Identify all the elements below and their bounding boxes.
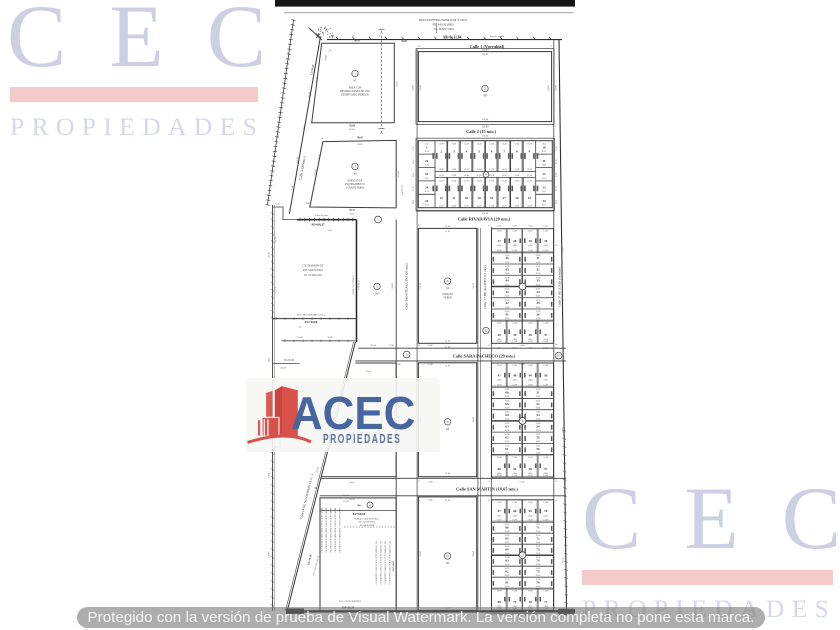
svg-text:Calle 3 (20 mts.): Calle 3 (20 mts.) [298,155,306,180]
svg-text:6: 6 [491,150,493,154]
svg-text:70: 70 [544,509,548,513]
svg-text:13,28: 13,28 [489,175,494,177]
svg-text:26,00: 26,00 [505,430,510,432]
svg-text:51,00: 51,00 [445,225,451,228]
svg-text:26,00: 26,00 [505,568,510,570]
svg-text:4: 4 [466,150,468,154]
svg-text:88: 88 [484,94,488,98]
svg-text:95,08: 95,08 [349,125,356,128]
svg-text:13,00: 13,00 [543,385,548,387]
svg-text:26,00: 26,00 [536,564,541,566]
svg-text:64,50: 64,50 [349,499,355,501]
svg-text:20: 20 [465,196,469,200]
svg-text:26,00: 26,00 [505,553,510,555]
svg-text:26,00: 26,00 [505,575,510,577]
svg-text:41,10: 41,10 [318,153,322,160]
svg-text:13,00: 13,00 [543,520,548,522]
svg-text:(360): (360) [528,244,532,247]
svg-text:13,00: 13,00 [512,341,517,343]
svg-text:13,00: 13,00 [528,520,533,522]
svg-text:13,00: 13,00 [528,591,533,593]
svg-text:AB=0+11,84: AB=0+11,84 [443,36,462,40]
svg-text:13,00: 13,00 [528,250,533,252]
svg-text:COMUNITARIO: COMUNITARIO [346,187,364,190]
svg-text:IV: IV [557,355,560,358]
svg-text:II: II [406,352,408,356]
svg-text:(360): (360) [544,472,548,475]
svg-text:(360): (360) [513,472,517,475]
svg-text:Calle MONTEAGUDO (20 mts.): Calle MONTEAGUDO (20 mts.) [405,262,409,310]
svg-text:100,00: 100,00 [420,551,422,557]
svg-text:13,00: 13,00 [543,591,548,593]
svg-text:13,28: 13,28 [514,175,519,177]
svg-text:18: 18 [490,196,494,200]
svg-text:13,28: 13,28 [464,169,469,171]
svg-text:12: 12 [379,36,381,38]
svg-text:47: 47 [498,373,502,377]
svg-text:94: 94 [358,504,361,508]
svg-text:110,00: 110,00 [482,135,489,138]
svg-text:13,00: 13,00 [497,502,502,504]
svg-text:42: 42 [505,301,509,305]
svg-text:13,00: 13,00 [543,250,548,252]
svg-text:93: 93 [446,427,450,431]
svg-text:26,00: 26,00 [505,266,510,268]
svg-text:43,30: 43,30 [268,253,270,258]
svg-text:5: 5 [478,150,480,154]
svg-text:DEC+68,05: DEC+68,05 [393,560,395,572]
svg-text:13,00: 13,00 [543,475,548,477]
svg-text:13,00: 13,00 [543,231,548,233]
svg-text:17,88: 17,88 [388,345,394,347]
svg-text:13,28: 13,28 [477,180,482,182]
svg-text:13,00: 13,00 [543,341,548,343]
svg-text:(360): (360) [513,514,517,517]
svg-text:SD+66,37: SD+66,37 [311,223,324,227]
svg-text:80: 80 [498,600,502,604]
svg-text:10: 10 [542,145,546,149]
svg-text:43,28: 43,28 [303,124,307,131]
svg-text:100,00: 100,00 [473,551,475,557]
svg-text:(360): (360) [513,338,517,341]
svg-text:38: 38 [529,333,533,337]
svg-text:13,28: 13,28 [527,175,532,177]
svg-text:s 29,70: s 29,70 [275,287,277,293]
svg-text:49: 49 [529,373,533,377]
svg-text:16,52: 16,52 [425,191,429,193]
svg-text:26,00: 26,00 [505,423,510,425]
svg-text:69: 69 [529,509,533,513]
svg-text:13,00: 13,00 [497,591,502,593]
svg-text:60: 60 [498,467,502,471]
svg-text:37: 37 [544,333,548,337]
svg-text:26,00: 26,00 [536,524,541,526]
svg-text:13,28: 13,28 [527,144,532,146]
svg-text:100,00: 100,00 [563,427,565,433]
svg-text:13,00: 13,00 [543,323,548,325]
svg-text:13,28: 13,28 [452,144,457,146]
svg-text:13,00: 13,00 [497,457,502,459]
svg-text:15: 15 [528,196,532,200]
svg-text:13,28: 13,28 [413,160,415,164]
svg-text:98,83: 98,83 [357,143,363,146]
svg-text:77: 77 [544,600,548,604]
svg-text:13: 13 [542,186,546,190]
svg-text:95,08: 95,08 [349,128,355,131]
svg-text:13,28: 13,28 [439,169,444,171]
svg-text:13,28: 13,28 [556,146,558,150]
svg-text:13: 13 [555,481,557,483]
svg-text:13,28: 13,28 [413,200,415,204]
svg-text:26,00: 26,00 [536,423,541,425]
svg-text:51,00: 51,00 [445,231,451,233]
svg-text:26,00: 26,00 [536,273,541,275]
svg-text:III: III [485,329,488,332]
svg-text:26,00: 26,00 [505,531,510,533]
svg-text:2: 2 [484,87,486,91]
svg-text:13,28: 13,28 [413,173,415,177]
svg-text:26,00: 26,00 [536,318,541,320]
svg-text:13,28: 13,28 [489,205,494,207]
svg-text:26,00: 26,00 [536,277,541,279]
svg-text:100,00: 100,00 [563,297,565,303]
svg-text:38,44: 38,44 [370,345,376,347]
svg-text:25: 25 [425,172,429,176]
svg-text:13,00: 13,00 [528,323,533,325]
svg-text:COHERENTE CARLOS R Y OT PD 345: COHERENTE CARLOS R Y OT PD 34509 PL 128 [389,541,392,585]
svg-text:7,50: 7,50 [275,204,280,206]
svg-text:26,00: 26,00 [505,296,510,298]
svg-text:57: 57 [544,467,548,471]
svg-text:26,00: 26,00 [505,400,510,402]
svg-text:PL 36.82171904: PL 36.82171904 [434,27,454,31]
svg-text:13: 13 [418,345,420,347]
svg-text:13,28: 13,28 [502,169,507,171]
svg-text:13,28: 13,28 [439,144,444,146]
svg-text:13,28: 13,28 [514,169,519,171]
svg-text:COHERENTE CARLOS R Y OT PD 345: COHERENTE CARLOS R Y OT PD 34509 PL 128 [380,541,383,585]
svg-text:13,28: 13,28 [477,175,482,177]
svg-text:A 45 20' 55": A 45 20' 55" [401,184,404,195]
svg-text:26,00: 26,00 [505,289,510,291]
svg-text:13,28: 13,28 [477,144,482,146]
svg-text:78,22: 78,22 [349,212,355,215]
svg-text:51,00: 51,00 [427,364,433,366]
svg-text:110,00: 110,00 [481,48,489,51]
svg-text:100,00: 100,00 [563,557,565,563]
svg-text:16: 16 [515,196,519,200]
svg-text:22: 22 [440,196,444,200]
svg-text:26,00: 26,00 [536,557,541,559]
svg-text:12: 12 [542,172,546,176]
svg-text:26,00: 26,00 [505,452,510,454]
svg-text:13,28: 13,28 [502,180,507,182]
svg-text:13,00: 13,00 [497,250,502,252]
svg-text:85,50: 85,50 [268,473,270,478]
svg-text:90,41: 90,41 [354,40,361,43]
svg-text:PROPIEDAD HORIZONTAL S RES 147: PROPIEDAD HORIZONTAL S RES 147 PD 345091 [339,508,342,553]
svg-text:13,28: 13,28 [527,205,532,207]
svg-text:19: 19 [477,196,481,200]
svg-text:33,00: 33,00 [555,84,558,90]
svg-text:26,00: 26,00 [505,557,510,559]
svg-text:26,00: 26,00 [536,307,541,309]
svg-text:s/tit.: s/tit. [328,230,332,232]
svg-text:21: 21 [452,196,456,200]
svg-text:26,00: 26,00 [536,452,541,454]
svg-text:13,00: 13,00 [497,385,502,387]
svg-text:26,00: 26,00 [505,307,510,309]
svg-text:4,04: 4,04 [328,48,333,53]
svg-text:COHERENTE CARLOS R Y OT PD 345: COHERENTE CARLOS R Y OT PD 34509 PL 128 [375,541,378,585]
svg-text:13,28: 13,28 [452,175,457,177]
svg-text:13,28: 13,28 [556,200,558,204]
svg-text:23: 23 [425,199,429,203]
svg-text:3: 3 [550,46,552,48]
svg-text:11: 11 [488,225,490,227]
svg-text:PL 128-0-12098: PL 128-0-12098 [360,525,375,527]
svg-text:26,00: 26,00 [505,586,510,588]
svg-text:91: 91 [446,286,450,290]
svg-text:26,00: 26,00 [536,430,541,432]
svg-text:s 02,50: s 02,50 [280,368,287,370]
svg-text:13,00: 13,00 [497,341,502,343]
svg-text:13,28: 13,28 [527,169,532,171]
svg-text:(360): (360) [528,338,532,341]
svg-text:9: 9 [529,150,531,154]
svg-text:51,00: 51,00 [445,473,451,475]
svg-text:16,52: 16,52 [542,151,546,153]
svg-text:8: 8 [447,420,449,424]
svg-text:84,50: 84,50 [343,495,349,497]
svg-text:SUP. TRANSFERIDA (S.L.): SUP. TRANSFERIDA (S.L.) [297,313,325,316]
svg-text:13,28: 13,28 [452,180,457,182]
svg-text:100,00: 100,00 [420,282,422,289]
svg-text:51,00: 51,00 [519,482,525,484]
svg-text:16,52: 16,52 [425,164,429,166]
svg-text:26,00: 26,00 [505,419,510,421]
svg-text:26,00: 26,00 [505,277,510,279]
svg-text:16,52: 16,52 [542,205,546,207]
svg-text:26,00: 26,00 [505,407,510,409]
svg-text:26,00: 26,00 [536,542,541,544]
svg-text:13,00: 13,00 [528,457,533,459]
svg-text:(360): (360) [544,379,548,382]
svg-text:A: A [380,31,383,35]
svg-text:13,28: 13,28 [452,169,457,171]
svg-text:26,00: 26,00 [536,412,541,414]
svg-text:16,52: 16,52 [425,178,429,180]
svg-text:(360): (360) [497,338,501,341]
svg-text:29,61: 29,61 [268,358,270,363]
svg-text:16,52: 16,52 [542,144,546,146]
svg-text:24% CUALQUIL TALIN: 24% CUALQUIL TALIN [312,555,320,576]
svg-text:PROPIEDAD HORIZONTAL S RES 147: PROPIEDAD HORIZONTAL S RES 147 PD 345091 [330,508,333,553]
svg-text:Calle 17 DE AGOSTO (15 mts.): Calle 17 DE AGOSTO (15 mts.) [483,264,487,308]
svg-text:13,00: 13,00 [543,225,548,227]
svg-text:16,52: 16,52 [425,151,429,153]
svg-text:26,00: 26,00 [536,553,541,555]
svg-text:15,00: 15,00 [297,337,303,339]
svg-text:48,50: 48,50 [349,482,355,484]
svg-text:26,00: 26,00 [536,300,541,302]
svg-text:(360): (360) [497,472,501,475]
svg-text:15,00: 15,00 [327,337,333,339]
svg-text:29: 29 [529,239,533,243]
svg-text:26,00: 26,00 [536,419,541,421]
svg-text:13,28: 13,28 [439,180,444,182]
svg-text:PD: 34509170001: PD: 34509170001 [359,522,375,524]
svg-text:10: 10 [446,555,449,558]
svg-text:16,52: 16,52 [542,178,546,180]
svg-text:13,28: 13,28 [489,180,494,182]
svg-text:10: 10 [418,225,420,227]
svg-text:98,83: 98,83 [357,137,364,140]
svg-text:7: 7 [503,150,505,154]
svg-text:13,00: 13,00 [543,502,548,504]
svg-text:Calle 20 DE JUNIO (Variable): Calle 20 DE JUNIO (Variable) [557,267,561,307]
svg-text:26,00: 26,00 [505,396,510,398]
svg-text:74,37: 74,37 [396,80,399,86]
svg-text:13,28: 13,28 [477,205,482,207]
svg-text:1: 1 [426,145,428,149]
svg-text:58: 58 [529,467,533,471]
svg-text:13,00: 13,00 [512,250,517,252]
svg-text:51,00: 51,00 [445,341,451,343]
svg-text:100,00: 100,00 [392,283,394,289]
svg-text:SUP. s/ANTECEDENTES: SUP. s/ANTECEDENTES [339,600,362,603]
svg-text:13,00: 13,00 [528,385,533,387]
svg-text:26,00: 26,00 [536,535,541,537]
svg-text:10: 10 [352,36,355,38]
svg-text:26,00: 26,00 [505,542,510,544]
svg-text:13,00: 13,00 [512,323,517,325]
svg-text:13,28: 13,28 [489,144,494,146]
svg-text:13,28: 13,28 [464,175,469,177]
svg-text:26,00: 26,00 [536,284,541,286]
svg-text:12: 12 [521,553,525,557]
svg-text:13,28: 13,28 [477,169,482,171]
svg-text:26,00: 26,00 [536,266,541,268]
svg-text:26,00: 26,00 [536,289,541,291]
svg-text:26,00: 26,00 [536,407,541,409]
svg-text:13,28: 13,28 [502,175,507,177]
svg-text:26,00: 26,00 [505,535,510,537]
svg-text:26,00: 26,00 [536,546,541,548]
svg-text:51,00: 51,00 [519,345,525,347]
svg-text:110,00: 110,00 [481,126,489,129]
svg-text:13,00: 13,00 [528,365,533,367]
svg-text:13,00: 13,00 [528,475,533,477]
svg-text:110,00: 110,00 [482,212,489,215]
svg-text:PL 78.328-1902: PL 78.328-1902 [304,274,322,277]
svg-text:14: 14 [555,344,557,346]
svg-text:A: A [380,131,383,135]
svg-text:26,00: 26,00 [536,575,541,577]
svg-text:(360): (360) [497,514,501,517]
svg-text:26,00: 26,00 [536,441,541,443]
svg-text:13,28: 13,28 [464,180,469,182]
svg-text:PD: 34503210000: PD: 34503210000 [432,23,454,27]
svg-text:L30+66,17: L30+66,17 [358,280,360,289]
svg-text:PEREZ CALLE PRECIO L.: PEREZ CALLE PRECIO L. [354,517,379,520]
svg-text:16,52: 16,52 [425,205,429,207]
svg-text:51,00: 51,00 [445,500,451,502]
svg-text:51,00: 51,00 [427,499,433,501]
svg-text:6: 6 [447,279,449,283]
svg-text:100,00: 100,00 [473,282,475,289]
svg-text:Calle SARA PACHECO (20 mts.): Calle SARA PACHECO (20 mts.) [453,354,516,359]
svg-text:MAZZUFERO PABLO M Y OTS: MAZZUFERO PABLO M Y OTS [419,18,467,22]
svg-text:PD: 34503170001: PD: 34503170001 [303,269,323,272]
svg-text:1: 1 [354,72,356,76]
svg-text:55,28: 55,28 [315,76,319,83]
svg-text:26,00: 26,00 [505,262,510,264]
svg-text:PROPIEDAD HORIZONTAL S RES 147: PROPIEDAD HORIZONTAL S RES 147 PD 345091 [334,508,337,553]
svg-text:13,00: 13,00 [528,225,533,227]
svg-text:20: 20 [418,500,420,502]
svg-text:8: 8 [516,150,518,154]
svg-text:30: 30 [544,239,548,243]
svg-text:82,76: 82,76 [344,501,350,503]
svg-text:26,00: 26,00 [536,396,541,398]
svg-text:13,28: 13,28 [413,146,415,150]
svg-text:13,00: 13,00 [497,231,502,233]
svg-text:13: 13 [321,138,324,140]
svg-text:Calle RIVADAVIA (20 mts.): Calle RIVADAVIA (20 mts.) [458,216,511,221]
svg-text:26,00: 26,00 [536,311,541,313]
svg-text:26: 26 [425,159,429,163]
svg-text:235,16: 235,16 [316,466,320,473]
svg-text:ESPACIO: ESPACIO [442,293,453,296]
svg-text:21: 21 [555,500,557,502]
svg-text:16,52: 16,52 [542,191,546,193]
svg-text:26,00: 26,00 [505,389,510,391]
svg-text:13,28: 13,28 [464,144,469,146]
svg-text:13,28: 13,28 [502,205,507,207]
svg-text:13,28: 13,28 [413,186,415,190]
svg-text:(360): (360) [528,379,532,382]
svg-text:40: 40 [498,333,502,337]
svg-text:14: 14 [542,199,546,203]
svg-text:30,00: 30,00 [401,40,408,43]
svg-text:13,00: 13,00 [497,520,502,522]
svg-text:26,00: 26,00 [536,262,541,264]
svg-text:13,28: 13,28 [556,173,558,177]
svg-text:13,00: 13,00 [543,365,548,367]
svg-text:26,00: 26,00 [536,400,541,402]
svg-text:26,00: 26,00 [536,296,541,298]
svg-text:26,00: 26,00 [505,311,510,313]
svg-text:(360): (360) [513,379,517,382]
svg-text:Tm 85,50: Tm 85,50 [284,359,295,362]
svg-text:EF+68,03: EF+68,03 [353,512,366,516]
svg-text:26,00: 26,00 [536,445,541,447]
svg-text:33,00: 33,00 [411,84,414,90]
svg-text:(360): (360) [497,379,501,382]
svg-text:13,28: 13,28 [514,144,519,146]
svg-text:26,00: 26,00 [505,273,510,275]
svg-text:(360): (360) [544,244,548,247]
svg-text:ZG+99,00: ZG+99,00 [305,320,318,324]
svg-text:3: 3 [453,150,455,154]
svg-text:33,00: 33,00 [419,84,422,90]
svg-text:13,00: 13,00 [512,457,517,459]
svg-text:26,00: 26,00 [505,445,510,447]
svg-text:13,00: 13,00 [543,457,548,459]
svg-text:26,00: 26,00 [505,284,510,286]
svg-text:13,28: 13,28 [489,169,494,171]
